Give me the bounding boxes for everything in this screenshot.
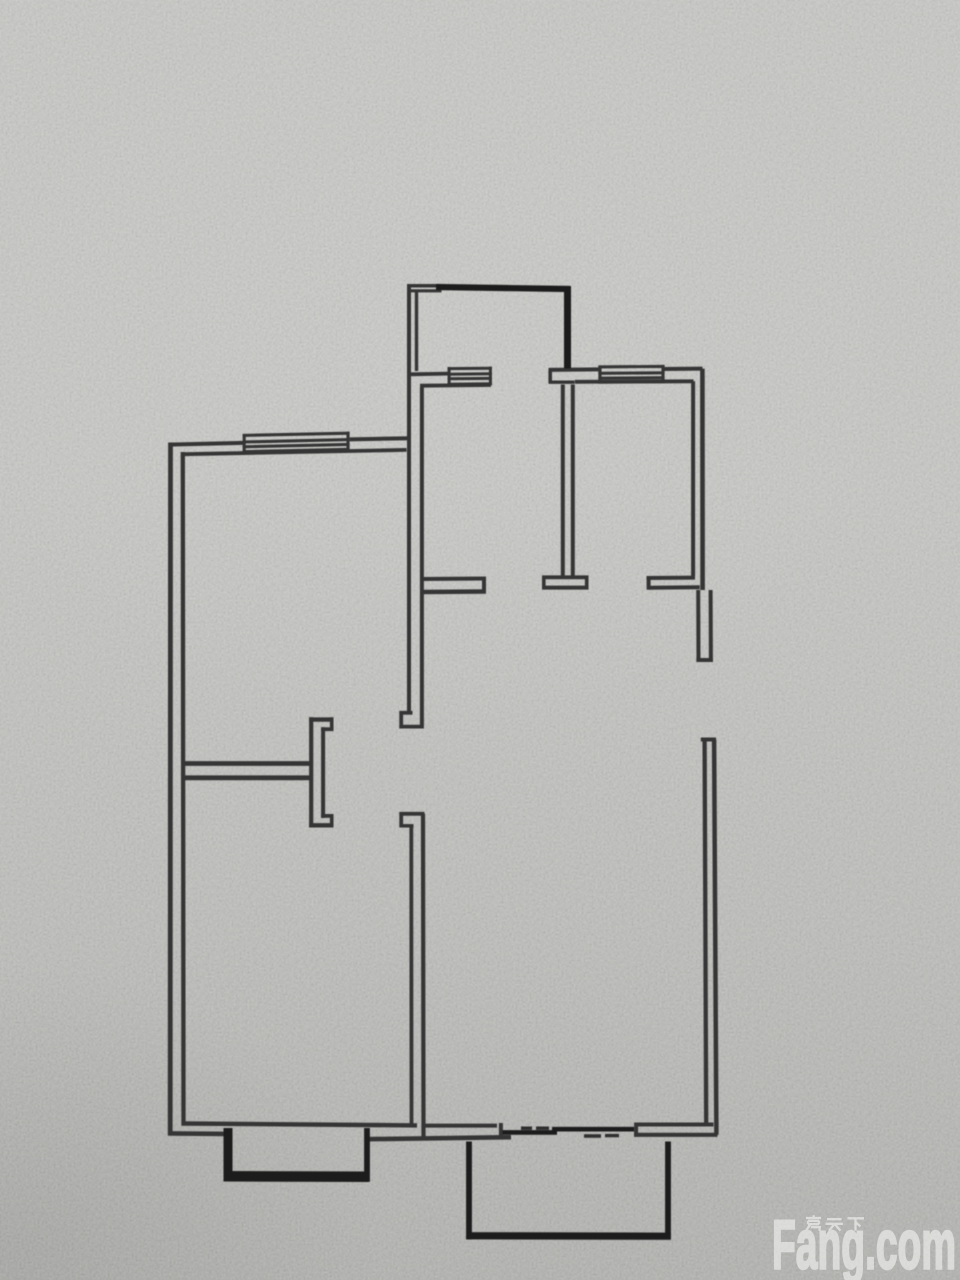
svg-text:Fang.com: Fang.com: [772, 1206, 956, 1280]
